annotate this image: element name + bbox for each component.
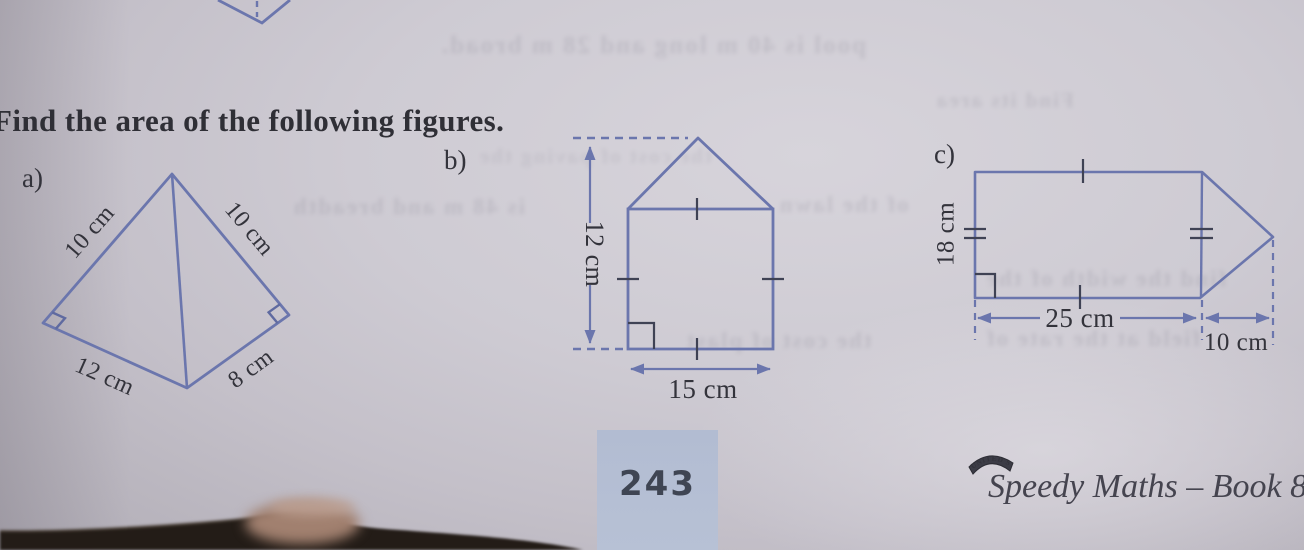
dimension-label: 12 cm (71, 352, 138, 401)
dimension-label: 10 cm (219, 197, 279, 261)
base-dimension-label: 15 cm (668, 374, 737, 404)
pentagon-outline (975, 172, 1273, 298)
prev-figure-lines (218, 0, 290, 23)
height-dimension-label: 12 cm (580, 221, 609, 288)
right-angle-mark (975, 274, 995, 298)
page-title: Find the area of the following figures. (0, 103, 504, 139)
right-angle-mark (269, 304, 280, 323)
figure-b: 12 cm 15 cm (555, 123, 810, 423)
triangle-dimension-label: 10 cm (1204, 329, 1268, 356)
right-angle-mark (52, 312, 65, 328)
figure-c: 18 cm 25 cm 10 cm (928, 138, 1304, 368)
base-dimension-label: 25 cm (1045, 303, 1114, 333)
figure-a: 10 cm 10 cm 12 cm 8 cm (8, 140, 338, 410)
rectangle-right-side (1201, 173, 1202, 297)
figure-b-label: b) (444, 145, 467, 176)
ghost-text: pool is 40 m long and 28 m broad. (440, 32, 866, 60)
house-roof (628, 138, 773, 209)
page-curl-highlight (270, 498, 355, 516)
right-angle-mark (628, 323, 654, 349)
height-dimension-label: 18 cm (933, 202, 960, 266)
dimension-label: 8 cm (224, 344, 279, 394)
kite-diagonal (172, 174, 187, 388)
dimension-label: 10 cm (60, 200, 120, 264)
house-body (628, 209, 773, 349)
prev-figure-fragment (200, 0, 300, 30)
ghost-text: Find its area (935, 88, 1074, 113)
footer-book-title: Speedy Maths – Book 8 (988, 468, 1304, 506)
